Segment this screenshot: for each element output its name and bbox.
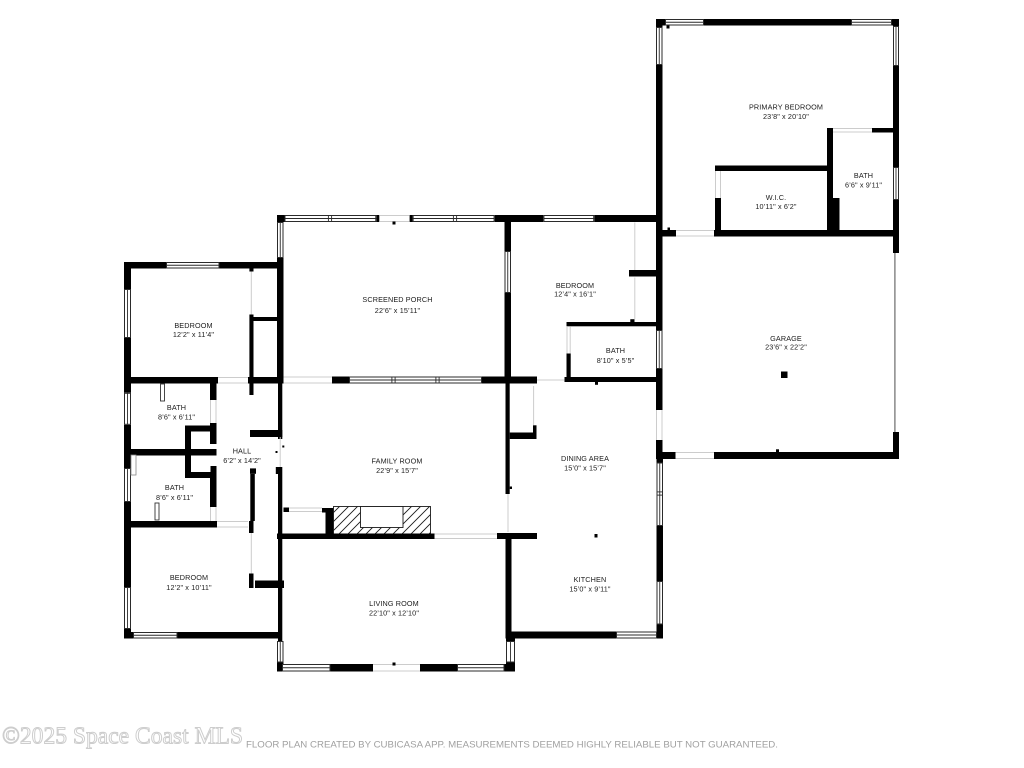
svg-text:BATH: BATH [167, 403, 186, 412]
svg-text:22’6" x 15’11": 22’6" x 15’11" [375, 306, 421, 315]
svg-text:15’0" x 15’7": 15’0" x 15’7" [564, 464, 606, 473]
svg-text:©2025 Space Coast MLS: ©2025 Space Coast MLS [2, 723, 243, 750]
svg-text:23’8" x 20’10": 23’8" x 20’10" [763, 112, 809, 121]
svg-text:LIVING ROOM: LIVING ROOM [369, 599, 419, 608]
svg-text:FAMILY ROOM: FAMILY ROOM [371, 457, 422, 466]
svg-text:PRIMARY BEDROOM: PRIMARY BEDROOM [749, 103, 823, 112]
svg-text:BEDROOM: BEDROOM [174, 321, 212, 330]
svg-text:BEDROOM: BEDROOM [170, 573, 208, 582]
svg-text:6’2" x 14’2": 6’2" x 14’2" [223, 456, 261, 465]
svg-text:8’10" x 5’5": 8’10" x 5’5" [597, 356, 635, 365]
svg-text:FLOOR PLAN CREATED BY CUBICASA: FLOOR PLAN CREATED BY CUBICASA APP. MEAS… [246, 739, 778, 749]
svg-text:BATH: BATH [854, 171, 873, 180]
svg-text:10’11" x 6’2": 10’11" x 6’2" [755, 202, 797, 211]
svg-text:BATH: BATH [606, 346, 625, 355]
svg-text:6’6" x 9’11": 6’6" x 9’11" [845, 180, 882, 189]
svg-text:12’2" x 10’11": 12’2" x 10’11" [166, 583, 212, 592]
svg-text:8’6" x 6’11": 8’6" x 6’11" [156, 493, 193, 502]
svg-text:12’4" x 16’1": 12’4" x 16’1" [554, 290, 596, 299]
svg-text:DINING AREA: DINING AREA [561, 454, 609, 463]
svg-text:HALL: HALL [233, 447, 252, 456]
svg-text:12’2" x 11’4": 12’2" x 11’4" [173, 330, 215, 339]
svg-text:23’6" x 22’2": 23’6" x 22’2" [765, 343, 807, 352]
svg-text:22’10" x 12’10": 22’10" x 12’10" [369, 609, 419, 618]
svg-text:8’6" x 6’11": 8’6" x 6’11" [158, 413, 195, 422]
svg-text:15’0" x 9’11": 15’0" x 9’11" [569, 585, 611, 594]
svg-text:22’9" x 15’7": 22’9" x 15’7" [376, 466, 418, 475]
svg-text:BATH: BATH [165, 483, 184, 492]
svg-text:SCREENED PORCH: SCREENED PORCH [362, 295, 432, 304]
svg-text:W.I.C.: W.I.C. [766, 193, 786, 202]
svg-text:KITCHEN: KITCHEN [574, 575, 607, 584]
